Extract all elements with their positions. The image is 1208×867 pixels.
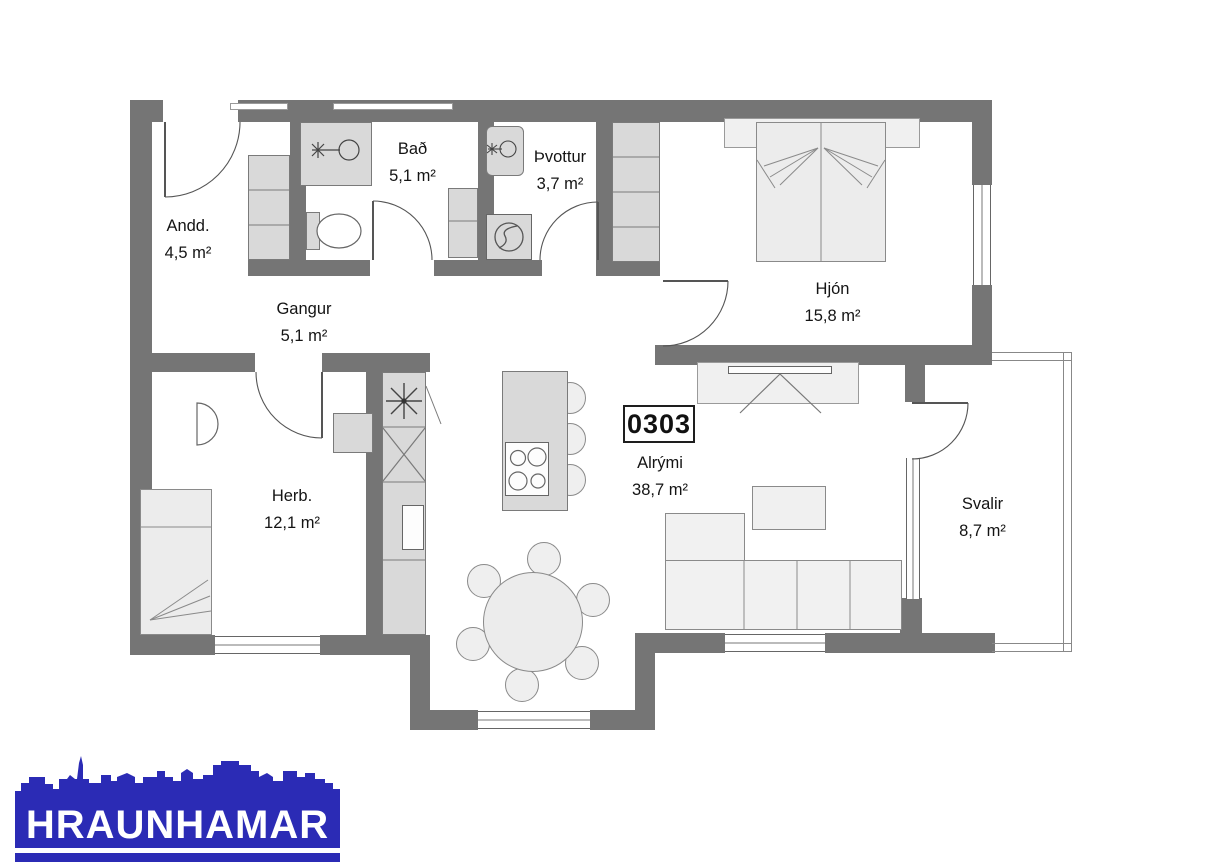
room-name: Bað — [365, 136, 460, 163]
room-label-hjon: Hjón 15,8 m² — [785, 276, 880, 330]
room-area: 5,1 m² — [365, 163, 460, 190]
bathroom-faucet-icon — [312, 140, 359, 160]
plan-linework — [0, 0, 1208, 867]
unit-number-box: 0303 — [623, 405, 695, 443]
entry-door-arc — [165, 122, 240, 197]
herb-door-arc — [256, 372, 322, 438]
room-label-svalir: Svalir 8,7 m² — [935, 491, 1030, 545]
half-round-table — [197, 403, 218, 445]
single-bed-linework — [141, 527, 211, 620]
room-area: 15,8 m² — [785, 303, 880, 330]
floor-plan: Andd. 4,5 m² Bað 5,1 m² Þvottur 3,7 m² H… — [0, 0, 1208, 867]
city-skyline-silhouette — [15, 753, 340, 808]
room-area: 5,1 m² — [256, 323, 352, 350]
laundry-door-arc — [540, 202, 598, 260]
logo-text: HRAUNHAMAR — [26, 803, 329, 848]
room-label-bad: Bað 5,1 m² — [365, 136, 460, 190]
room-name: Herb. — [242, 483, 342, 510]
cooktop-burners-icon — [509, 448, 546, 490]
room-label-thvottur: Þvottur 3,7 m² — [512, 144, 608, 198]
fridge-x-symbol — [383, 428, 425, 481]
room-label-herb: Herb. 12,1 m² — [242, 483, 342, 537]
bed-linework — [757, 122, 885, 261]
room-area: 12,1 m² — [242, 510, 342, 537]
sofa-seat-lines — [744, 561, 850, 629]
room-name: Þvottur — [512, 144, 608, 171]
room-area: 38,7 m² — [608, 477, 712, 504]
room-area: 8,7 m² — [935, 518, 1030, 545]
room-area: 4,5 m² — [138, 240, 238, 267]
room-area: 3,7 m² — [512, 171, 608, 198]
balcony-door-arc — [912, 403, 968, 459]
toilet-bowl — [317, 214, 361, 248]
room-name: Andd. — [138, 213, 238, 240]
room-name: Alrými — [608, 450, 712, 477]
washer-drum-icon — [495, 223, 523, 251]
logo-text-band: HRAUNHAMAR — [15, 803, 340, 848]
sink-asterisk-icon — [386, 383, 422, 419]
tv-angle-lines — [740, 374, 821, 413]
room-label-gangur: Gangur 5,1 m² — [256, 296, 352, 350]
room-name: Hjón — [785, 276, 880, 303]
room-label-andd: Andd. 4,5 m² — [138, 213, 238, 267]
hraunhamar-logo: HRAUNHAMAR — [15, 753, 340, 863]
room-name: Svalir — [935, 491, 1030, 518]
room-name: Gangur — [256, 296, 352, 323]
logo-underline-bar — [15, 853, 340, 862]
bedroom-door-arc — [663, 281, 728, 346]
room-label-alrymi: Alrými 38,7 m² — [608, 450, 712, 504]
bath-door-arc — [373, 201, 432, 260]
